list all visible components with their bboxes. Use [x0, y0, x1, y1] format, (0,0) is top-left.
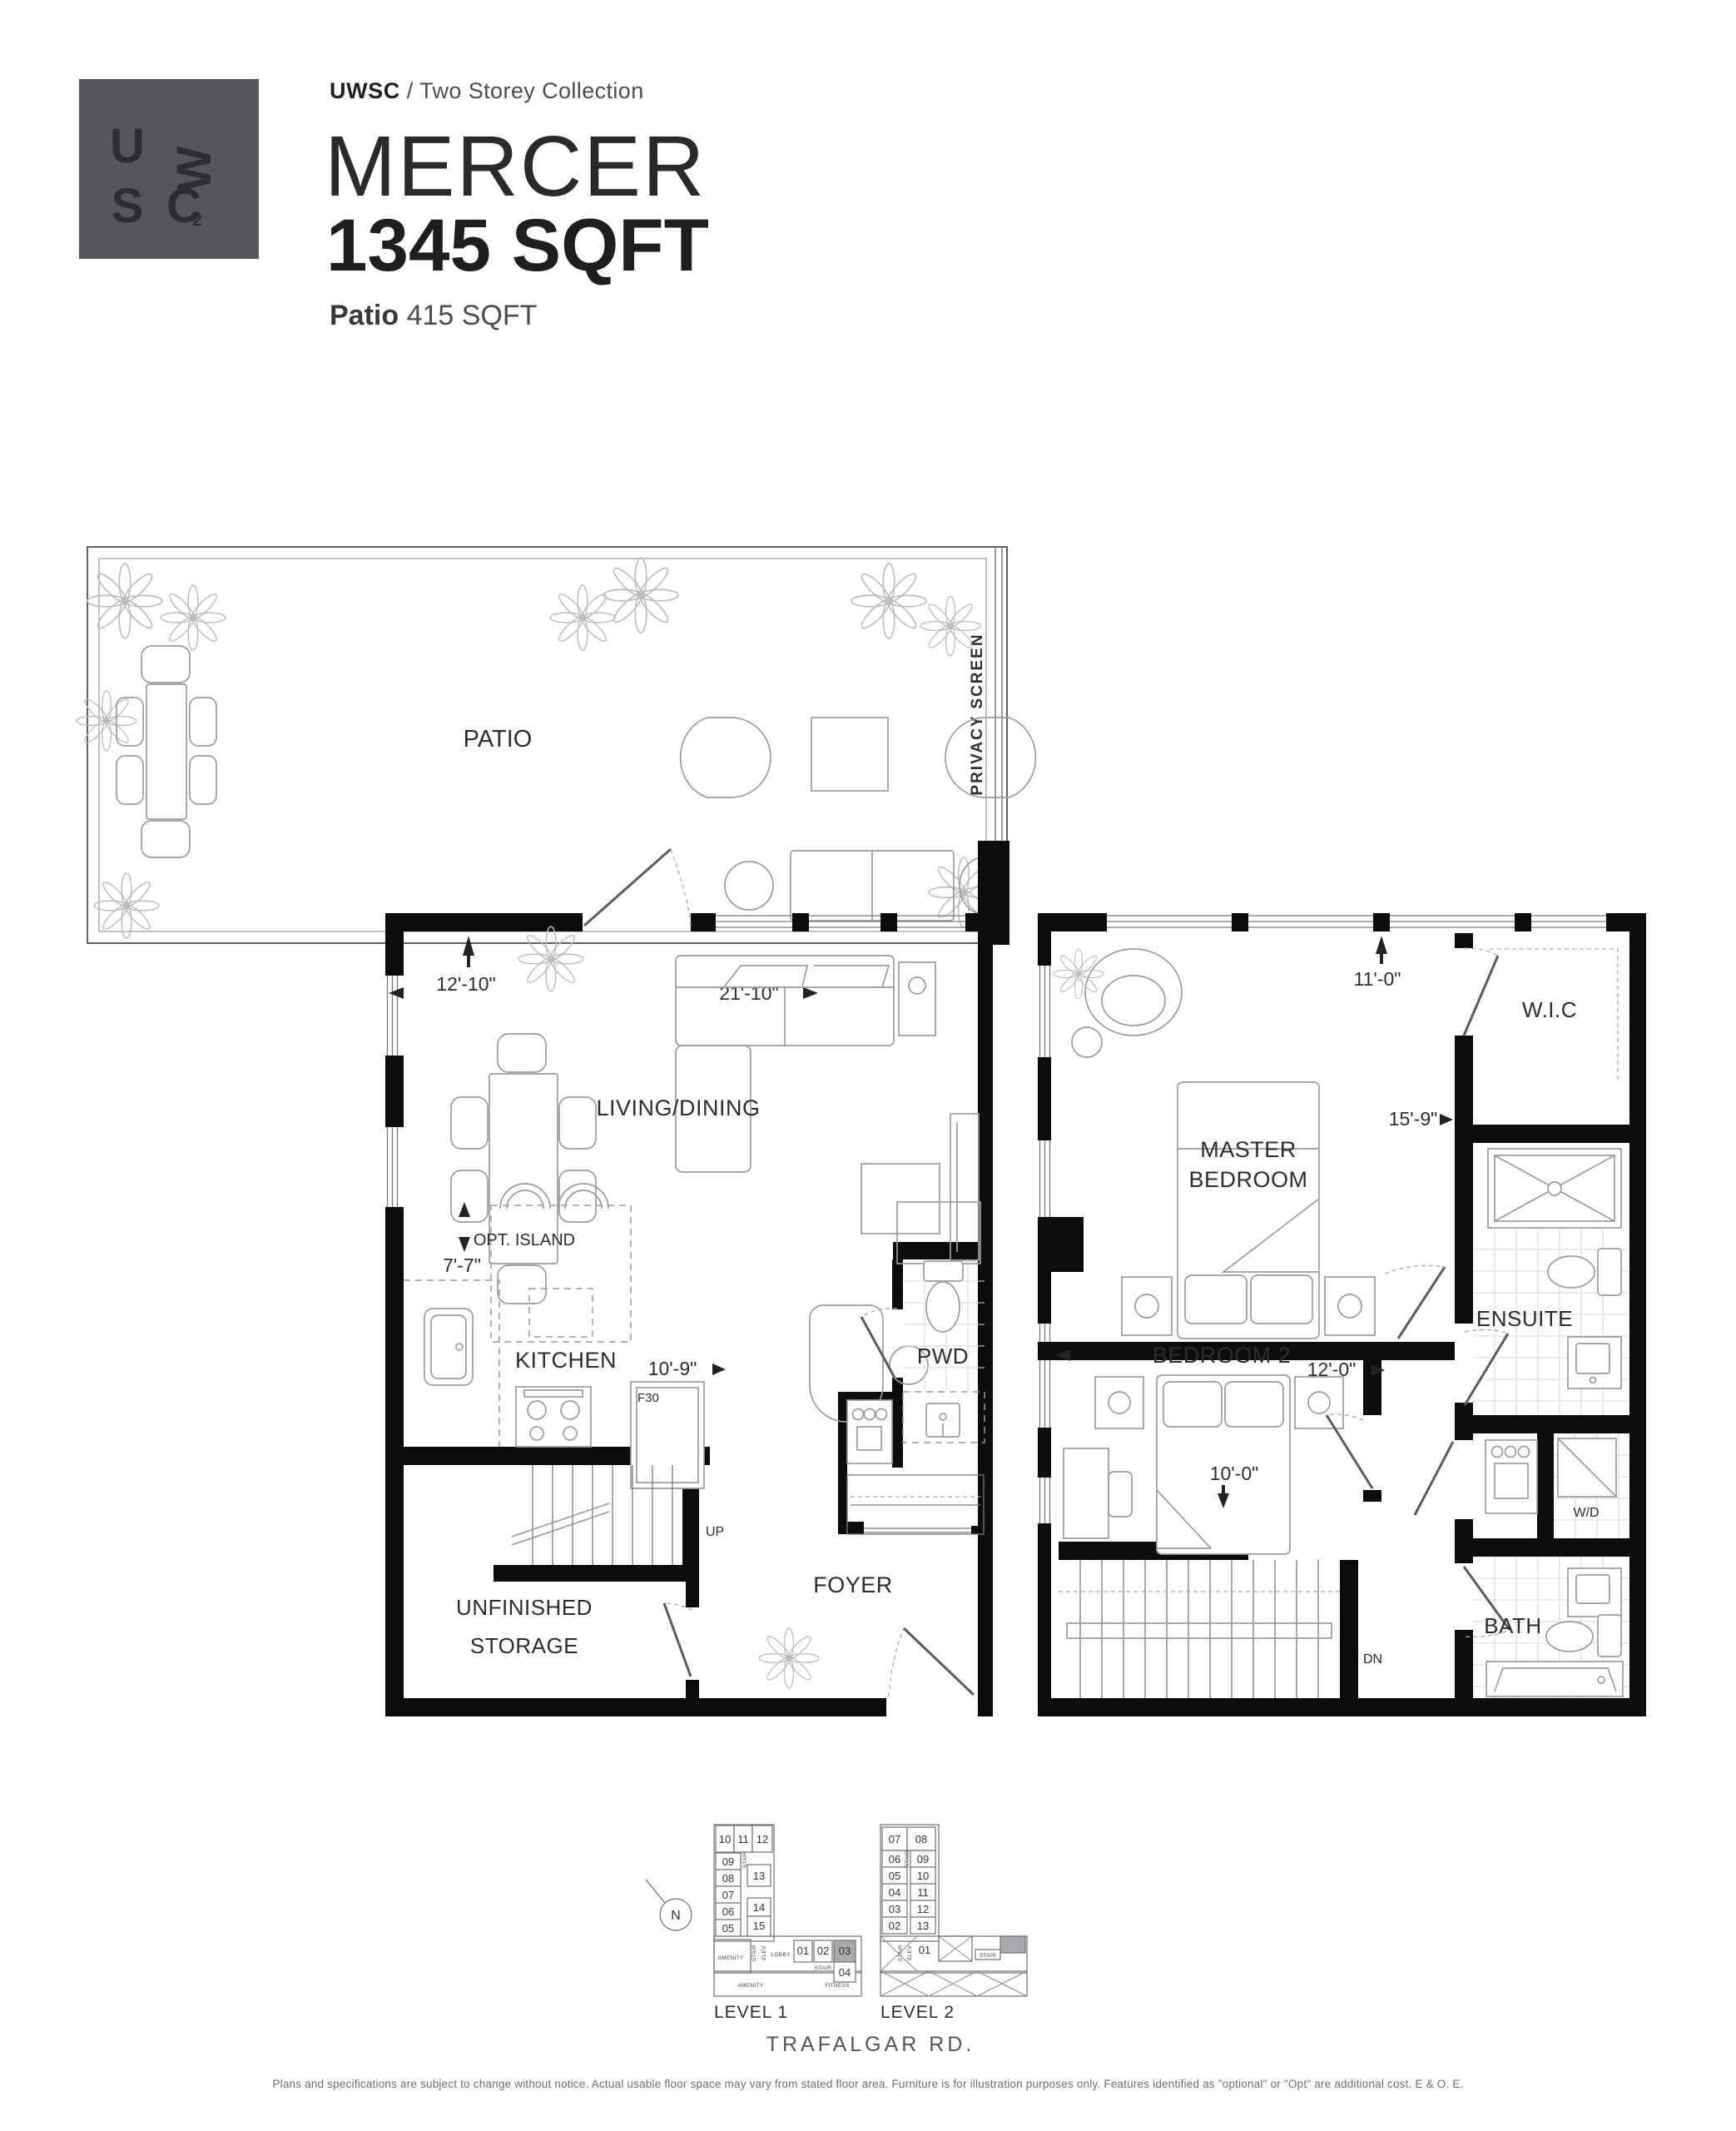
- kp1-unit: 12: [756, 1833, 768, 1845]
- kp1-unit: 08: [722, 1872, 734, 1885]
- dim-kitchen-width: 7'-7": [443, 1254, 481, 1276]
- dim-depth: 21'-10": [719, 982, 778, 1004]
- floorplan-drawing: PRIVACY SCREEN PATIO: [0, 0, 1736, 2131]
- up-label: UP: [706, 1525, 724, 1539]
- kp2-unit: 01: [919, 1944, 930, 1956]
- dim-bed2-width: 12'-0": [1307, 1359, 1357, 1380]
- privacy-screen-label: PRIVACY SCREEN: [969, 633, 986, 795]
- stairs-down: [1059, 1560, 1340, 1698]
- kp2-highlight-unit: [1000, 1936, 1025, 1953]
- bedroom2-door-leaf: [1327, 1415, 1372, 1488]
- kp2-unit: 07: [889, 1833, 900, 1845]
- kp2-unit: 04: [889, 1886, 900, 1899]
- kp1-unit: 09: [722, 1855, 734, 1868]
- kp2-unit: 12: [917, 1903, 929, 1915]
- storage-label-2: STORAGE: [470, 1633, 578, 1658]
- kp1-stair: STAIR: [742, 1851, 748, 1868]
- kp2-unit: 06: [889, 1853, 900, 1865]
- kp2-unit: 08: [915, 1833, 927, 1845]
- north-arrow: N: [646, 1880, 692, 1930]
- kp1-unit: 14: [753, 1901, 765, 1914]
- master-door-leaf: [1398, 1267, 1445, 1339]
- patio-dining-set: [117, 646, 216, 857]
- dim-kitchen-length: 10'-9": [648, 1358, 697, 1379]
- kp2-unit: 11: [917, 1886, 929, 1899]
- keyplans: N 10 11 12 09 08 07 06 05: [646, 1825, 1027, 2056]
- kp1-unit: 10: [719, 1833, 731, 1845]
- street-label: TRAFALGAR RD.: [766, 2033, 975, 2056]
- bedroom2-label: BEDROOM 2: [1153, 1343, 1292, 1368]
- kp1-unit: 11: [737, 1833, 749, 1845]
- kp1-unit: 05: [722, 1922, 734, 1935]
- pwd-room: [861, 1259, 985, 1390]
- kp1-unit: 01: [797, 1945, 809, 1957]
- opt-island-label: OPT. ISLAND: [474, 1231, 575, 1249]
- kp1-stair: STAIR: [751, 1945, 757, 1961]
- dim-entry: 12'-10": [436, 973, 495, 995]
- kp1-elev: ELEV: [761, 1945, 767, 1960]
- storage-door-leaf: [664, 1603, 691, 1676]
- dn-label: DN: [1363, 1652, 1382, 1667]
- patio-area: PRIVACY SCREEN PATIO: [77, 547, 1035, 943]
- pwd-label: PWD: [917, 1344, 969, 1369]
- kitchen-label: KITCHEN: [515, 1348, 617, 1373]
- kp1-amenity: AMENITY: [718, 1955, 744, 1961]
- pwd-vanity: [903, 1392, 985, 1443]
- foyer-closet: [847, 1475, 984, 1534]
- kp1-unit: 07: [722, 1889, 734, 1901]
- kp1-unit: 13: [753, 1870, 765, 1882]
- dim-master-length: 15'-9": [1389, 1108, 1438, 1130]
- kp1-unit: 15: [753, 1920, 765, 1932]
- keyplan-level2: 07 08 06 05 04 03 02 09 10 11 12 13 STAI…: [880, 1825, 1027, 2022]
- ensuite-shower: [1488, 1149, 1621, 1228]
- wic-label: W.I.C: [1522, 997, 1577, 1022]
- kp2-unit: 02: [889, 1920, 900, 1932]
- kp1-unit: 06: [722, 1905, 734, 1918]
- patio-plants: [77, 558, 999, 938]
- bath-label: BATH: [1484, 1613, 1541, 1638]
- kp1-amenity: AMENITY: [738, 1983, 764, 1989]
- level1-plan: 12'-10" 21'-10": [385, 841, 1009, 1716]
- patio-door-leaf: [584, 849, 671, 926]
- wd-closet: [1415, 1433, 1629, 1538]
- kp1-stair: STAIR: [815, 1965, 831, 1971]
- level1-walls: [385, 841, 1009, 1716]
- keyplan-level2-label: LEVEL 2: [880, 2003, 955, 2022]
- kp2-unit: 10: [917, 1870, 929, 1882]
- patio-label: PATIO: [464, 726, 533, 753]
- kp2-unit: 09: [917, 1853, 929, 1865]
- kp1-lobby: LOBBY: [771, 1952, 791, 1958]
- kp2-unit: 05: [889, 1870, 900, 1882]
- mech-closet: [847, 1400, 892, 1463]
- kp2-elev: ELEV: [907, 1945, 913, 1960]
- wd-label: W/D: [1573, 1506, 1599, 1520]
- north-label: N: [671, 1909, 681, 1923]
- kp1-fitness: FITNESS: [825, 1983, 850, 1989]
- keyplan-level1: 10 11 12 09 08 07 06 05 13 14 15 STAIR S…: [714, 1825, 861, 2022]
- ensuite-label: ENSUITE: [1476, 1306, 1573, 1331]
- kp1-unit: 04: [839, 1966, 851, 1979]
- fridge-label: F30: [637, 1391, 659, 1405]
- kp2-unit: 13: [917, 1920, 929, 1932]
- living-dining-label: LIVING/DINING: [596, 1095, 760, 1120]
- kp2-unit: 03: [889, 1903, 900, 1915]
- kp2-stair: STAIR: [905, 1850, 910, 1867]
- kp2-stair: STAIR: [980, 1953, 996, 1959]
- storage-label-1: UNFINISHED: [456, 1595, 593, 1620]
- kp1-unit: 03: [839, 1945, 851, 1957]
- dim-master-width: 11'-0": [1354, 968, 1401, 990]
- master-label-2: BEDROOM: [1188, 1167, 1307, 1192]
- dim-bed2-length: 10'-0": [1210, 1463, 1259, 1484]
- kp1-unit: 02: [817, 1945, 829, 1957]
- disclaimer: Plans and specifications are subject to …: [0, 2078, 1736, 2090]
- entry-door-leaf: [904, 1628, 974, 1695]
- master-label-1: MASTER: [1200, 1137, 1297, 1162]
- level2-plan: 11'-0" MASTER BEDROOM 15'-9" W.I.C: [1038, 913, 1646, 1716]
- kp2-stair: STAIR: [898, 1945, 904, 1961]
- keyplan-level1-label: LEVEL 1: [714, 2003, 788, 2022]
- bedroom2-furniture: [1064, 1375, 1343, 1554]
- foyer-label: FOYER: [813, 1572, 893, 1597]
